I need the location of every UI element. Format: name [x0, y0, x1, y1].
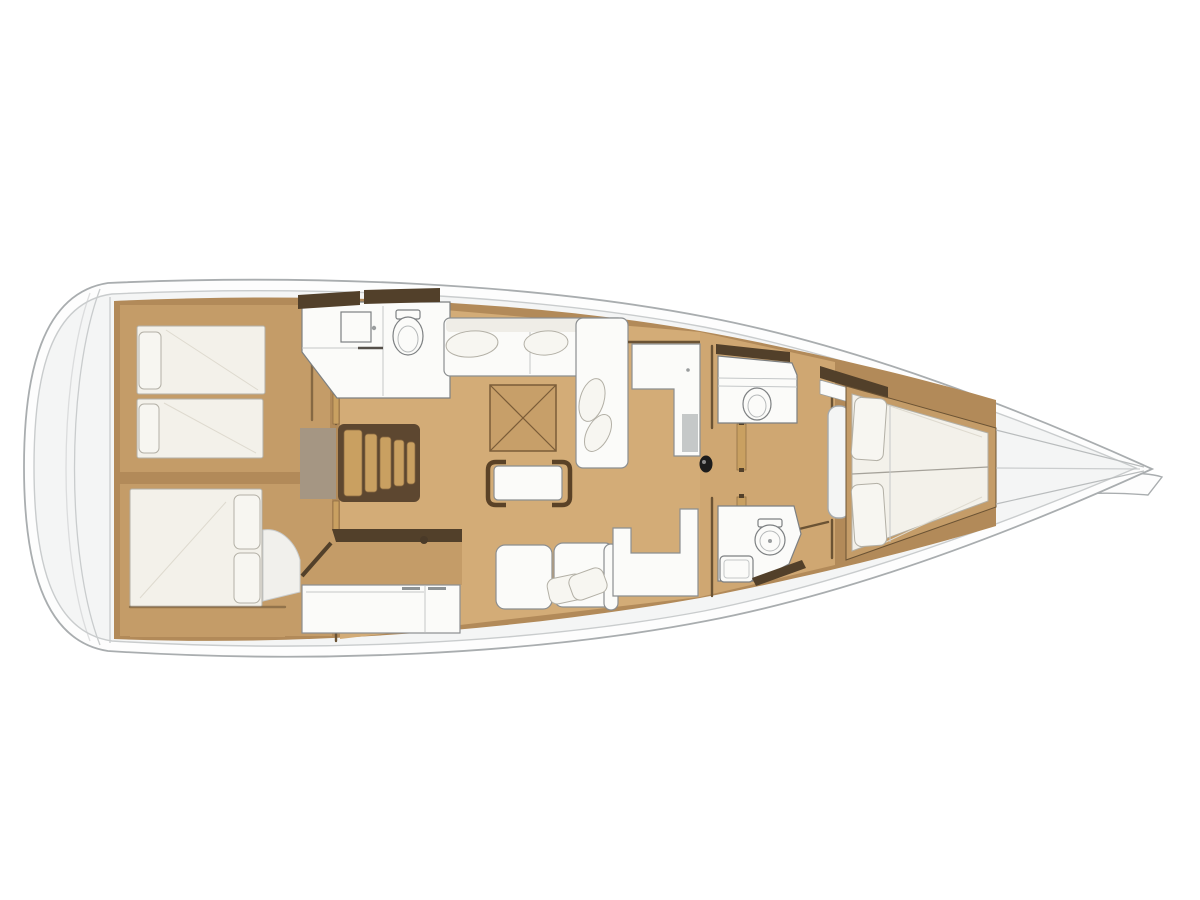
toilet [393, 317, 423, 355]
pillow [851, 483, 887, 547]
galley-counter-edge [332, 529, 462, 542]
toilet [743, 388, 771, 420]
toilet-drain [768, 539, 772, 543]
stair-step [380, 437, 391, 489]
floor-plan-canvas [0, 0, 1200, 900]
mast-post-center [702, 460, 706, 464]
mast-post [700, 456, 713, 473]
yacht-floor-plan [0, 0, 1200, 900]
door-hinge [739, 468, 744, 472]
door-hinge [739, 494, 744, 498]
pillow [234, 553, 260, 603]
pillow [139, 332, 161, 389]
companionway-stairs [300, 424, 420, 502]
pillow [139, 404, 159, 453]
stair-step [394, 440, 404, 486]
handle [402, 587, 420, 590]
sofa-starboard [496, 543, 618, 610]
coffee-table [494, 466, 562, 500]
galley-faucet [420, 536, 428, 544]
faucet-dot [372, 326, 376, 330]
counter-dot [686, 368, 690, 372]
sink-appliance [682, 414, 698, 452]
shower-sink [341, 312, 371, 342]
pillow [234, 495, 260, 549]
stair-step [344, 430, 362, 496]
stair-step [407, 442, 415, 484]
corridor-door [737, 424, 746, 470]
pillow [851, 397, 887, 461]
stair-step [365, 434, 377, 492]
foot-shelf [130, 607, 285, 637]
stair-landing [300, 428, 336, 499]
cabinet-top [364, 288, 440, 304]
handle [428, 587, 446, 590]
sofa-cushion [496, 545, 552, 609]
